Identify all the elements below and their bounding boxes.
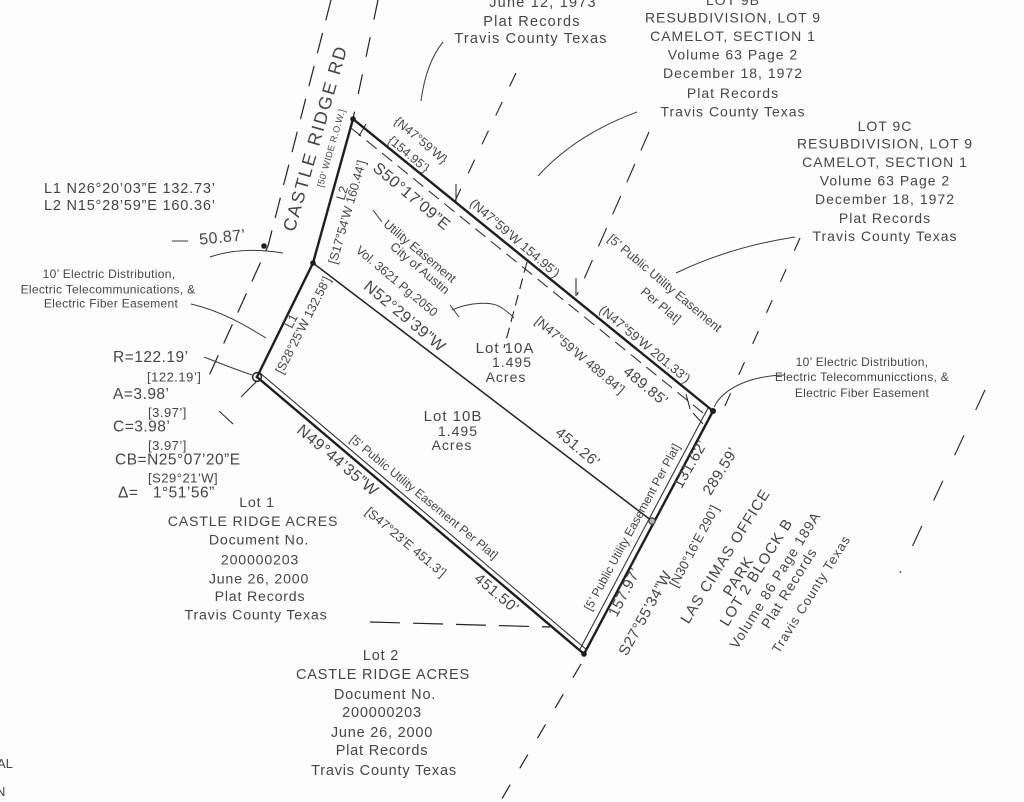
svg-text:1.495: 1.495: [492, 354, 532, 370]
svg-text:Volume 63 Page 2: Volume 63 Page 2: [668, 47, 798, 63]
svg-text:June 26, 2000: June 26, 2000: [331, 725, 433, 741]
svg-text:June 12, 1973: June 12, 1973: [489, 0, 597, 11]
svg-text:Δ= 1°51’56”: Δ= 1°51’56”: [118, 485, 215, 502]
svg-text:200000203: 200000203: [342, 705, 422, 721]
svg-text:AL: AL: [0, 756, 13, 771]
svg-text:RESUBDIVISION, LOT 9: RESUBDIVISION, LOT 9: [645, 10, 821, 26]
svg-text:Plat Records: Plat Records: [483, 14, 580, 30]
svg-text:Travis County Texas: Travis County Texas: [311, 763, 457, 779]
svg-text:Electric Telecommunicctions, &: Electric Telecommunicctions, &: [775, 370, 949, 384]
svg-text:CAMELOT, SECTION 1: CAMELOT, SECTION 1: [802, 154, 968, 170]
svg-text:Acres: Acres: [432, 437, 473, 453]
svg-text:Travis County Texas: Travis County Texas: [454, 31, 607, 47]
svg-text:Plat Records: Plat Records: [687, 85, 779, 101]
svg-text:Plat Records: Plat Records: [839, 210, 931, 226]
svg-text:Acres: Acres: [486, 369, 527, 385]
svg-text:[122.19’]: [122.19’]: [147, 370, 201, 385]
svg-text:A=3.98’: A=3.98’: [113, 386, 170, 403]
svg-text:LOT 9B: LOT 9B: [706, 0, 760, 8]
svg-text:10’ Electric Distribution,: 10’ Electric Distribution,: [796, 355, 929, 369]
svg-text:Travis County Texas: Travis County Texas: [812, 228, 957, 244]
svg-text:Electric Telecommunications, &: Electric Telecommunications, &: [21, 283, 196, 297]
svg-text:Travis County Texas: Travis County Texas: [185, 608, 328, 624]
svg-text:Electric Fiber Easement: Electric Fiber Easement: [795, 386, 930, 400]
svg-text:Plat Records: Plat Records: [336, 743, 429, 759]
svg-text:N: N: [0, 784, 5, 799]
svg-text:200000203: 200000203: [221, 553, 299, 569]
svg-text:10’ Electric Distribution,: 10’ Electric Distribution,: [43, 267, 176, 281]
svg-text:Travis County Texas: Travis County Texas: [660, 104, 805, 120]
svg-text:Plat Records: Plat Records: [215, 589, 306, 605]
svg-text:L1 N26°20’03”E 132.73’: L1 N26°20’03”E 132.73’: [44, 181, 216, 197]
svg-text:R=122.19’: R=122.19’: [113, 349, 189, 366]
svg-text:[S29°21’W]: [S29°21’W]: [148, 471, 218, 486]
svg-text:CASTLE RIDGE ACRES: CASTLE RIDGE ACRES: [296, 667, 470, 683]
svg-text:Document No.: Document No.: [334, 687, 436, 703]
svg-text:RESUBDIVISION, LOT 9: RESUBDIVISION, LOT 9: [797, 136, 973, 152]
svg-text:C=3.98’: C=3.98’: [113, 419, 170, 436]
svg-text:LOT 9C: LOT 9C: [858, 118, 913, 134]
svg-text:Volume 63 Page 2: Volume 63 Page 2: [820, 173, 950, 189]
svg-text:CASTLE RIDGE ACRES: CASTLE RIDGE ACRES: [168, 514, 339, 530]
svg-text:CB=N25°07’20”E: CB=N25°07’20”E: [115, 452, 241, 469]
svg-text:L2 N15°28’59”E 160.36’: L2 N15°28’59”E 160.36’: [44, 198, 216, 214]
svg-text:Lot 1: Lot 1: [239, 495, 275, 511]
svg-text:CAMELOT, SECTION 1: CAMELOT, SECTION 1: [650, 28, 816, 44]
svg-text:Document No.: Document No.: [209, 533, 309, 549]
svg-text:June 26, 2000: June 26, 2000: [209, 572, 309, 588]
svg-text:Lot 2: Lot 2: [363, 648, 399, 664]
svg-text:December 18, 1972: December 18, 1972: [815, 191, 955, 207]
svg-text:Electric Fiber Easement: Electric Fiber Easement: [44, 297, 179, 311]
svg-text:December 18, 1972: December 18, 1972: [663, 65, 803, 81]
